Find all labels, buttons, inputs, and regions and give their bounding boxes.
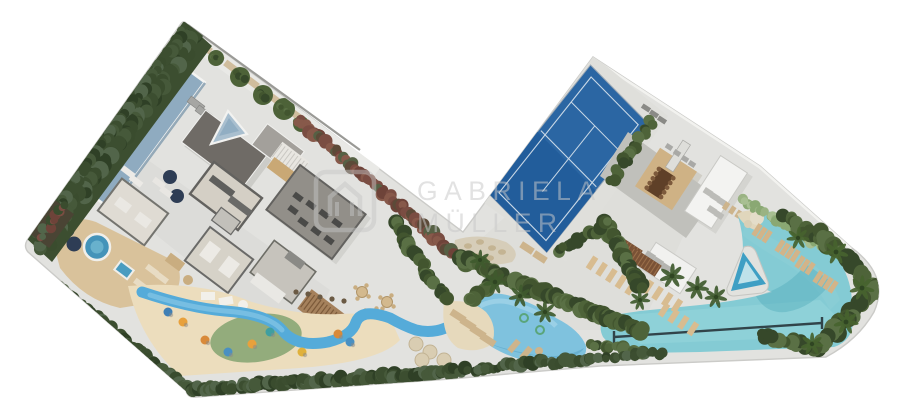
svg-text:GABRIELA: GABRIELA (417, 176, 602, 206)
svg-text:MÜLLER: MÜLLER (417, 208, 564, 238)
